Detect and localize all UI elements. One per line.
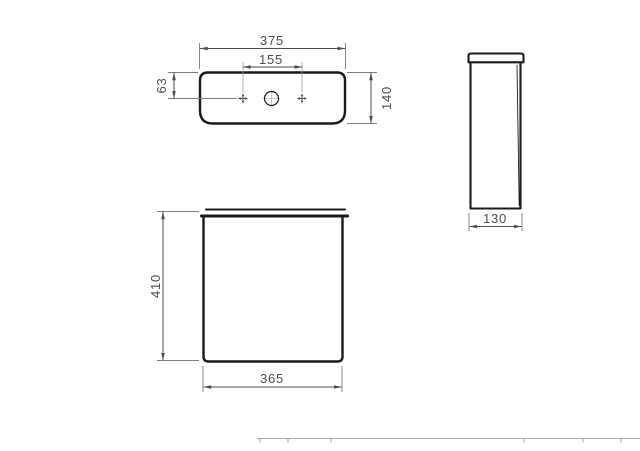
dimension-front-height: 410 bbox=[148, 212, 199, 361]
dim-label-side-depth: 130 bbox=[483, 211, 507, 226]
side-taper-line bbox=[517, 65, 519, 206]
table-column-ticks bbox=[260, 439, 621, 443]
dim-label-hole-spacing: 155 bbox=[259, 52, 283, 67]
dimension-top-depth: 140 bbox=[347, 73, 394, 124]
dimension-front-width: 365 bbox=[203, 366, 342, 392]
fixing-hole-marker-icon bbox=[297, 94, 307, 104]
extension-lines bbox=[347, 73, 377, 124]
dim-label-top-depth: 140 bbox=[379, 86, 394, 110]
dimension-hole-offset: 63 bbox=[154, 73, 237, 99]
side-view: 130 bbox=[469, 54, 524, 232]
dim-label-top-width: 375 bbox=[260, 33, 284, 48]
top-view: 375 155 63 140 bbox=[154, 33, 394, 124]
dim-label-hole-offset: 63 bbox=[154, 77, 169, 93]
cistern-front-outline bbox=[204, 217, 343, 362]
drawing-page: 375 155 63 140 410 bbox=[0, 0, 640, 451]
cistern-technical-drawing: 375 155 63 140 410 bbox=[0, 0, 640, 451]
fixing-hole-marker-icon bbox=[238, 94, 248, 104]
lid-side-outline bbox=[469, 54, 524, 63]
dim-label-front-height: 410 bbox=[148, 274, 163, 298]
cistern-side-outline bbox=[471, 63, 521, 209]
dim-label-front-width: 365 bbox=[260, 371, 284, 386]
cistern-top-outline bbox=[200, 73, 345, 124]
extension-lines bbox=[168, 73, 237, 99]
table-top-border bbox=[257, 439, 640, 443]
front-view: 410 365 bbox=[148, 210, 348, 393]
flush-valve-centermark bbox=[263, 90, 281, 108]
dimension-side-depth: 130 bbox=[469, 211, 522, 231]
